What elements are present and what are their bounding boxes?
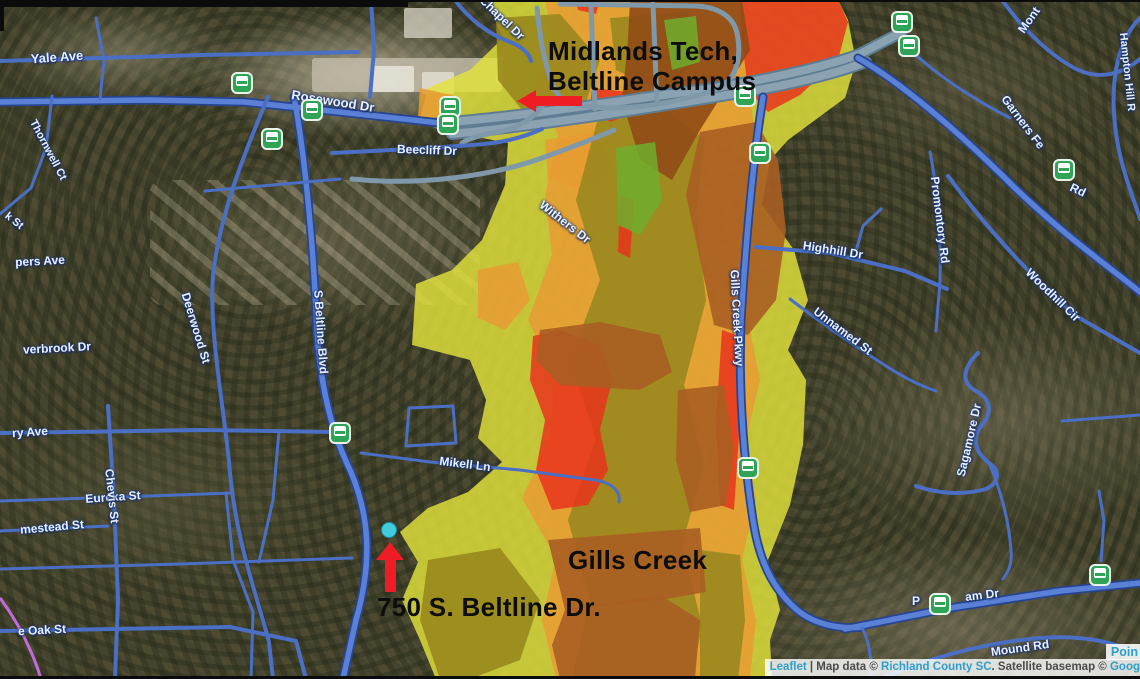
- bus-stop-icon[interactable]: [437, 113, 459, 135]
- bus-stop-icon[interactable]: [329, 422, 351, 444]
- attribution-text: . Satellite basemap ©: [992, 661, 1110, 673]
- bus-stop-icon[interactable]: [929, 593, 951, 615]
- location-dot-marker[interactable]: [381, 522, 397, 538]
- attribution-link[interactable]: Goog: [1110, 661, 1140, 673]
- boundary-line: [0, 598, 41, 679]
- bus-stop-icon[interactable]: [1053, 159, 1075, 181]
- campus-annotation-line1: Midlands Tech,: [548, 36, 756, 66]
- bus-stop-icon[interactable]: [1089, 564, 1111, 586]
- campus-arrow-icon: [517, 90, 583, 112]
- top-edge-bar: [0, 0, 408, 7]
- attribution-link[interactable]: Richland County SC: [881, 661, 992, 673]
- attribution-bar: Leaflet | Map data © Richland County SC.…: [765, 659, 1140, 676]
- bus-stop-icon[interactable]: [749, 142, 771, 164]
- attribution-text: | Map data ©: [807, 661, 881, 673]
- top-edge-line: [408, 0, 1140, 2]
- bus-stop-icon[interactable]: [891, 11, 913, 33]
- bus-stop-icon[interactable]: [898, 35, 920, 57]
- left-edge-notch: [0, 7, 4, 31]
- address-arrow-icon: [376, 542, 404, 592]
- attribution-link[interactable]: Leaflet: [770, 661, 807, 673]
- campus-annotation: Midlands Tech, Beltline Campus: [548, 36, 756, 96]
- creek-annotation: Gills Creek: [568, 545, 707, 575]
- bus-stop-icon[interactable]: [231, 72, 253, 94]
- bus-stop-icon[interactable]: [301, 99, 323, 121]
- bus-stop-icon[interactable]: [261, 128, 283, 150]
- bus-stop-icon[interactable]: [737, 457, 759, 479]
- address-annotation: 750 S. Beltline Dr.: [377, 592, 601, 622]
- partial-label-box: Poin: [1106, 644, 1140, 660]
- map-canvas[interactable]: Yale AveRosewood DrThornwell CtBeecliff …: [0, 0, 1140, 679]
